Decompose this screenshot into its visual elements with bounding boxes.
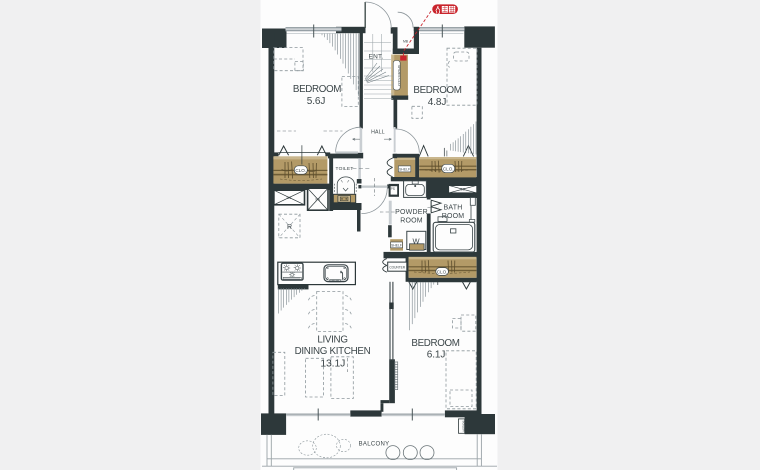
- svg-text:ROOM: ROOM: [400, 218, 423, 225]
- svg-text:BOILER: BOILER: [462, 421, 466, 433]
- svg-text:DINING KITCHEN: DINING KITCHEN: [295, 346, 371, 357]
- svg-text:W: W: [412, 237, 420, 246]
- svg-text:DS: DS: [287, 196, 292, 200]
- svg-text:BEDROOM: BEDROOM: [413, 85, 461, 96]
- svg-text:R: R: [287, 224, 292, 231]
- svg-text:LIVING: LIVING: [317, 335, 347, 346]
- svg-text:COUNTER: COUNTER: [389, 265, 405, 269]
- svg-text:CLO.: CLO.: [437, 269, 448, 274]
- svg-text:TOILET: TOILET: [336, 166, 354, 172]
- svg-text:BEDROOM: BEDROOM: [411, 338, 459, 349]
- svg-text:13.1J: 13.1J: [320, 359, 345, 370]
- svg-text:5.6J: 5.6J: [307, 96, 326, 107]
- svg-text:CLO.: CLO.: [443, 167, 454, 172]
- svg-text:PS: PS: [316, 198, 321, 202]
- svg-text:CLO.: CLO.: [295, 168, 306, 173]
- svg-text:BEDROOM: BEDROOM: [293, 84, 341, 95]
- svg-text:BATH: BATH: [444, 205, 463, 212]
- svg-text:ENT.: ENT.: [369, 54, 384, 61]
- svg-text:POWDER: POWDER: [395, 209, 428, 216]
- svg-text:4.8J: 4.8J: [428, 97, 447, 108]
- svg-text:MB: MB: [403, 40, 409, 44]
- svg-text:6.1J: 6.1J: [427, 350, 446, 361]
- svg-text:ROOM: ROOM: [442, 213, 465, 220]
- svg-text:SHELF: SHELF: [391, 243, 402, 247]
- svg-text:DS: DS: [460, 188, 464, 192]
- svg-text:PS: PS: [391, 187, 395, 191]
- svg-text:HALL: HALL: [371, 130, 385, 136]
- svg-text:SHELF: SHELF: [399, 167, 410, 171]
- svg-text:BALCONY: BALCONY: [359, 442, 390, 448]
- svg-text:SHOES CLO: SHOES CLO: [397, 65, 401, 86]
